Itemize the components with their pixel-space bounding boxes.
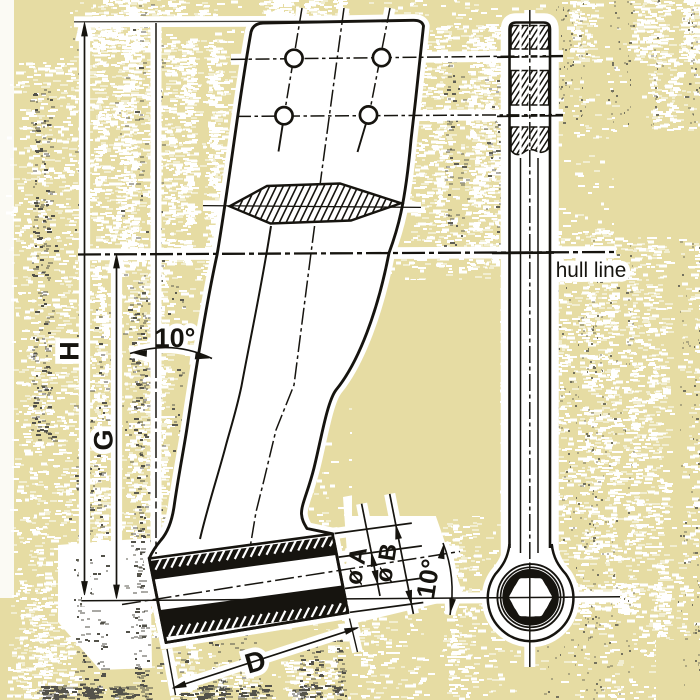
svg-text:H: H — [55, 341, 85, 361]
svg-text:G: G — [89, 429, 119, 450]
svg-text:10°: 10° — [155, 323, 196, 353]
svg-text:hull line: hull line — [556, 259, 627, 282]
svg-text:10°: 10° — [410, 557, 446, 601]
